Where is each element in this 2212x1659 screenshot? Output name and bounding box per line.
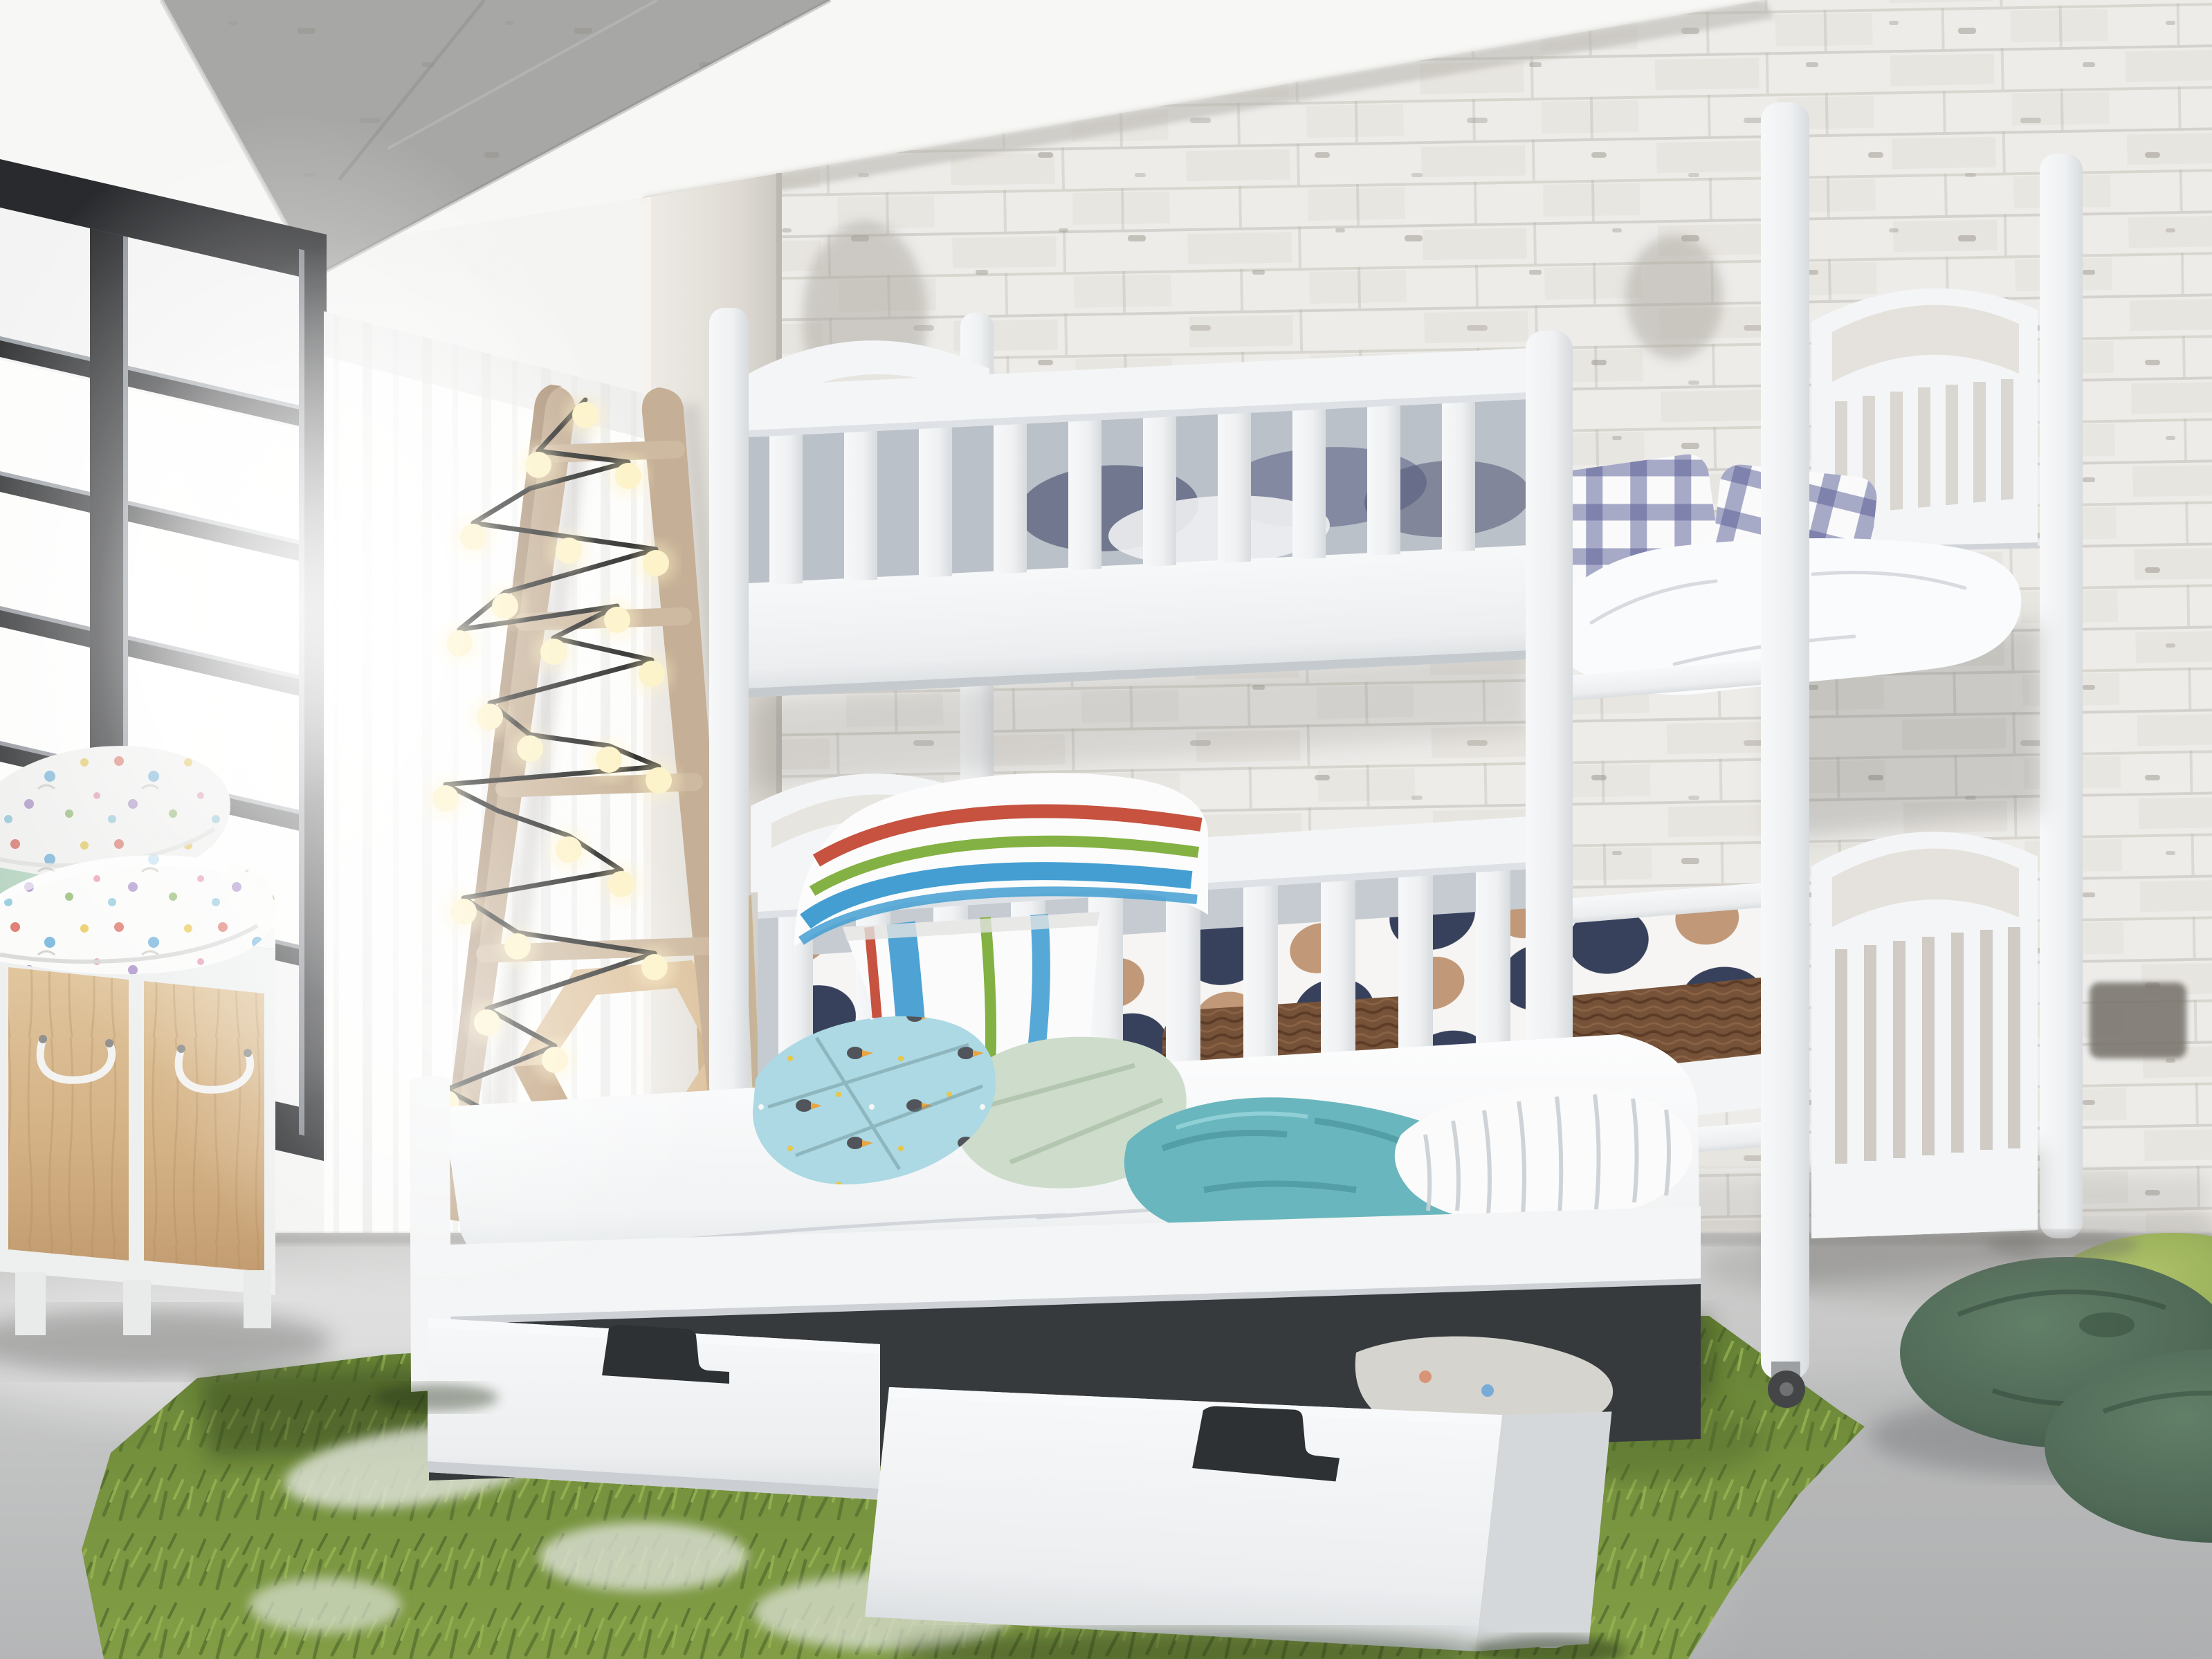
scene-canvas xyxy=(0,0,2212,1659)
window-light-bloom xyxy=(0,0,2212,1659)
kids-bedroom-scene xyxy=(0,0,2212,1659)
